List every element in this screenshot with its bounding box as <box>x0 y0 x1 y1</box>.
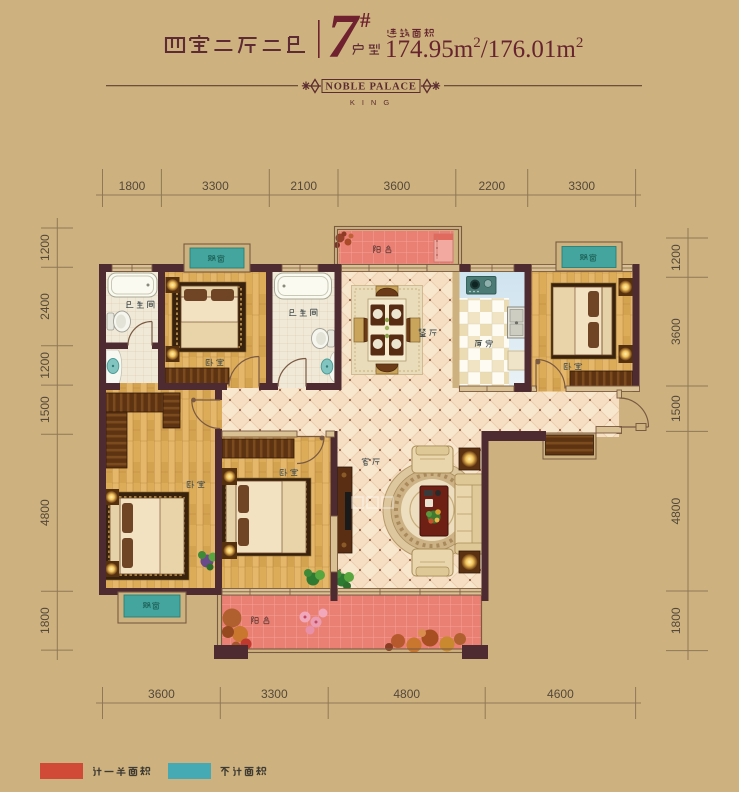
svg-text:NOBLE PALACE: NOBLE PALACE <box>325 82 416 93</box>
svg-text:1200: 1200 <box>669 244 683 271</box>
svg-text:174.95m2/176.01m2: 174.95m2/176.01m2 <box>385 35 583 63</box>
svg-text:2100: 2100 <box>290 179 317 193</box>
svg-text:1200: 1200 <box>38 234 52 261</box>
svg-text:3300: 3300 <box>568 179 595 193</box>
svg-text:1500: 1500 <box>38 396 52 423</box>
svg-text:1800: 1800 <box>119 179 146 193</box>
svg-text:4600: 4600 <box>547 687 574 701</box>
svg-text:7: 7 <box>327 3 361 71</box>
svg-text:3300: 3300 <box>202 179 229 193</box>
svg-text:3600: 3600 <box>384 179 411 193</box>
svg-text:#: # <box>360 8 371 32</box>
svg-text:KING: KING <box>350 98 396 107</box>
svg-text:4800: 4800 <box>393 687 420 701</box>
svg-text:3600: 3600 <box>148 687 175 701</box>
svg-text:1500: 1500 <box>669 395 683 422</box>
svg-text:4800: 4800 <box>38 499 52 526</box>
svg-text:3300: 3300 <box>261 687 288 701</box>
svg-text:3600: 3600 <box>669 318 683 345</box>
svg-text:2200: 2200 <box>478 179 505 193</box>
svg-text:1200: 1200 <box>38 352 52 379</box>
svg-text:1800: 1800 <box>669 607 683 634</box>
svg-text:1800: 1800 <box>38 607 52 634</box>
svg-text:4800: 4800 <box>669 498 683 525</box>
svg-text:2400: 2400 <box>38 293 52 320</box>
